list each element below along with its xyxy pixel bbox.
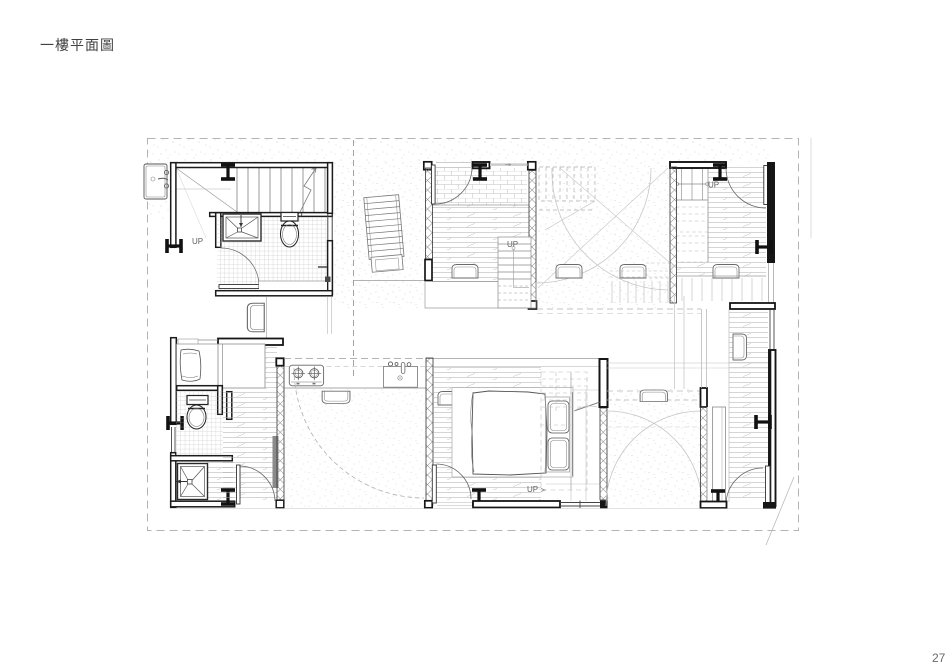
svg-text:一樓平面圖: 一樓平面圖 [40,37,115,53]
svg-text:27: 27 [932,651,946,665]
svg-text:UP: UP [192,237,203,246]
svg-text:UP: UP [708,181,719,190]
svg-text:UP: UP [507,240,518,249]
svg-text:UP: UP [527,485,538,494]
